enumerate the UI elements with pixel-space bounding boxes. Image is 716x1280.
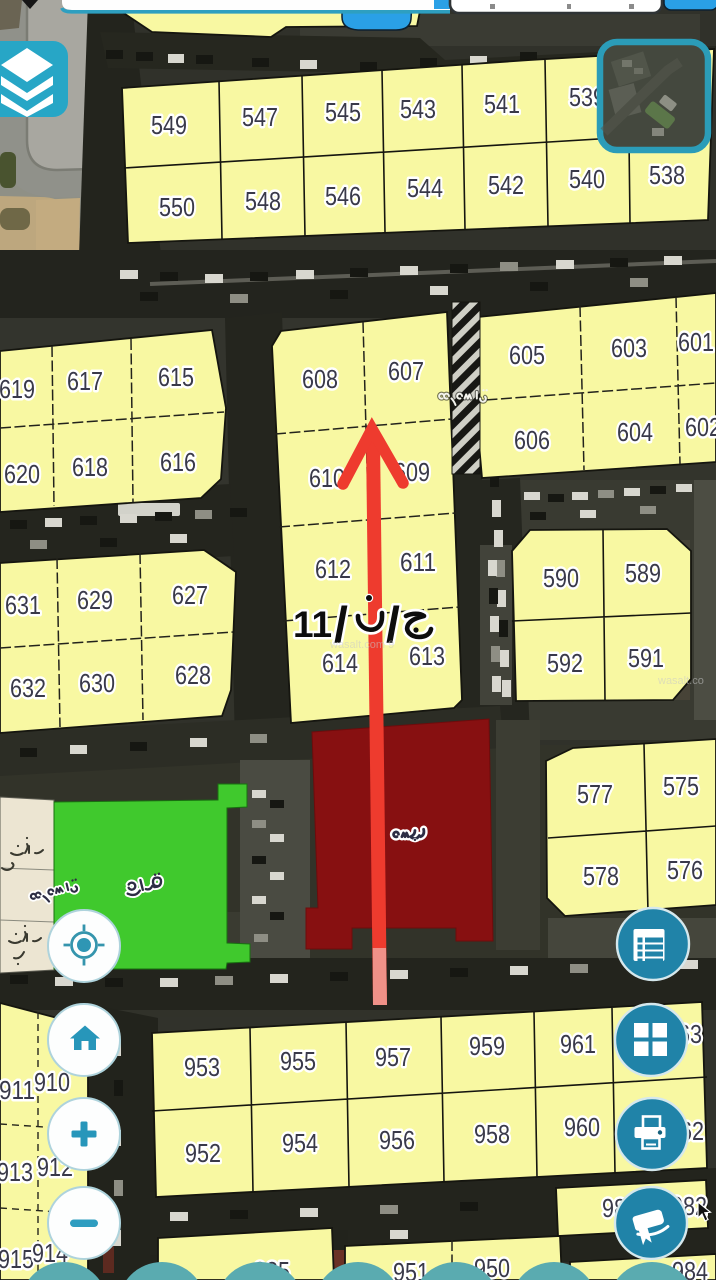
svg-text:545: 545: [325, 97, 361, 127]
svg-text:618: 618: [72, 452, 108, 482]
svg-text:632: 632: [10, 673, 46, 703]
svg-text:591: 591: [628, 643, 664, 673]
svg-text:628: 628: [175, 660, 211, 690]
svg-text:wasalt.co: wasalt.co: [657, 675, 704, 687]
svg-text:550: 550: [159, 192, 195, 222]
svg-text:911: 911: [0, 1075, 35, 1105]
svg-text:631: 631: [5, 590, 41, 620]
svg-text:538: 538: [649, 160, 685, 190]
svg-text:619: 619: [0, 374, 35, 404]
svg-text:961: 961: [560, 1029, 596, 1059]
svg-text:547: 547: [242, 102, 278, 132]
svg-text:578: 578: [583, 861, 619, 891]
svg-text:546: 546: [325, 181, 361, 211]
svg-text:605: 605: [509, 340, 545, 370]
svg-text:11: 11: [293, 604, 332, 645]
svg-text:615: 615: [158, 362, 194, 392]
svg-text:575: 575: [663, 771, 699, 801]
svg-text:589: 589: [625, 558, 661, 588]
svg-text:wasalt.com 9: wasalt.com 9: [329, 639, 394, 651]
svg-text:604: 604: [617, 417, 653, 447]
svg-text:956: 956: [379, 1125, 415, 1155]
svg-text:627: 627: [172, 580, 208, 610]
svg-text:959: 959: [469, 1031, 505, 1061]
svg-text:616: 616: [160, 447, 196, 477]
svg-text:548: 548: [245, 186, 281, 216]
svg-text:602: 602: [685, 412, 716, 442]
svg-text:957: 957: [375, 1042, 411, 1072]
svg-text:952: 952: [185, 1138, 221, 1168]
svg-text:543: 543: [400, 94, 436, 124]
svg-text:542: 542: [488, 170, 524, 200]
svg-text:953: 953: [184, 1052, 220, 1082]
svg-text:960: 960: [564, 1112, 600, 1142]
svg-text:592: 592: [547, 648, 583, 678]
svg-text:576: 576: [667, 855, 703, 885]
svg-text:915: 915: [0, 1244, 34, 1274]
svg-text:613: 613: [409, 641, 445, 671]
svg-text:958: 958: [474, 1119, 510, 1149]
svg-text:603: 603: [611, 333, 647, 363]
svg-text:629: 629: [77, 585, 113, 615]
svg-text:601: 601: [678, 327, 714, 357]
svg-text:541: 541: [484, 89, 520, 119]
svg-text:607: 607: [388, 356, 424, 386]
svg-text:630: 630: [79, 668, 115, 698]
svg-text:954: 954: [282, 1128, 318, 1158]
svg-text:611: 611: [400, 547, 436, 577]
svg-text:612: 612: [315, 554, 351, 584]
svg-text:549: 549: [151, 110, 187, 140]
svg-text:606: 606: [514, 425, 550, 455]
svg-text:544: 544: [407, 173, 443, 203]
svg-text:540: 540: [569, 164, 605, 194]
svg-text:620: 620: [4, 459, 40, 489]
svg-text:577: 577: [577, 779, 613, 809]
svg-text:608: 608: [302, 364, 338, 394]
svg-text:617: 617: [67, 366, 103, 396]
svg-text:590: 590: [543, 563, 579, 593]
svg-text:955: 955: [280, 1046, 316, 1076]
svg-text:913: 913: [0, 1157, 33, 1187]
